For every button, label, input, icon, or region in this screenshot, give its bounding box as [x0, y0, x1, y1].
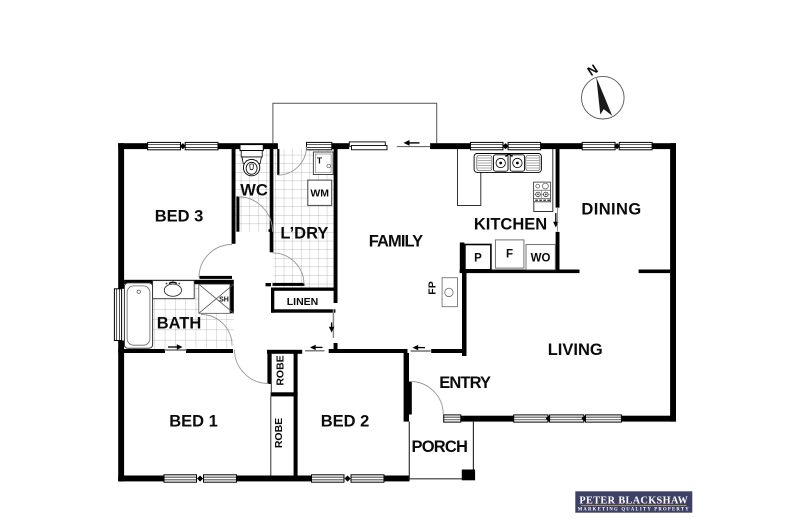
svg-text:WC: WC [240, 182, 268, 200]
svg-text:PETER BLACKSHAW: PETER BLACKSHAW [579, 495, 688, 506]
svg-text:KITCHEN: KITCHEN [474, 216, 547, 234]
svg-text:L’DRY: L’DRY [280, 224, 328, 242]
svg-text:MARKETING QUALITY PROPERTY: MARKETING QUALITY PROPERTY [578, 508, 690, 513]
svg-text:LIVING: LIVING [548, 341, 603, 359]
svg-text:ROBE: ROBE [273, 418, 285, 448]
svg-text:DINING: DINING [581, 201, 641, 219]
svg-text:BED 3: BED 3 [155, 208, 204, 226]
svg-text:FAMILY: FAMILY [369, 232, 423, 250]
svg-text:ROBE: ROBE [275, 355, 287, 385]
svg-text:BED 1: BED 1 [169, 413, 218, 431]
svg-text:BATH: BATH [157, 314, 202, 332]
svg-text:P: P [474, 253, 482, 265]
svg-text:SH: SH [219, 297, 229, 304]
svg-text:FP: FP [427, 281, 439, 294]
svg-text:WO: WO [531, 253, 551, 265]
svg-text:PORCH: PORCH [412, 438, 468, 456]
svg-text:LINEN: LINEN [287, 296, 319, 308]
svg-text:N: N [584, 61, 600, 79]
svg-text:BED 2: BED 2 [321, 413, 370, 431]
svg-text:WM: WM [310, 188, 329, 200]
svg-text:F: F [506, 249, 513, 261]
svg-text:T: T [317, 156, 323, 166]
svg-text:ENTRY: ENTRY [439, 374, 491, 392]
